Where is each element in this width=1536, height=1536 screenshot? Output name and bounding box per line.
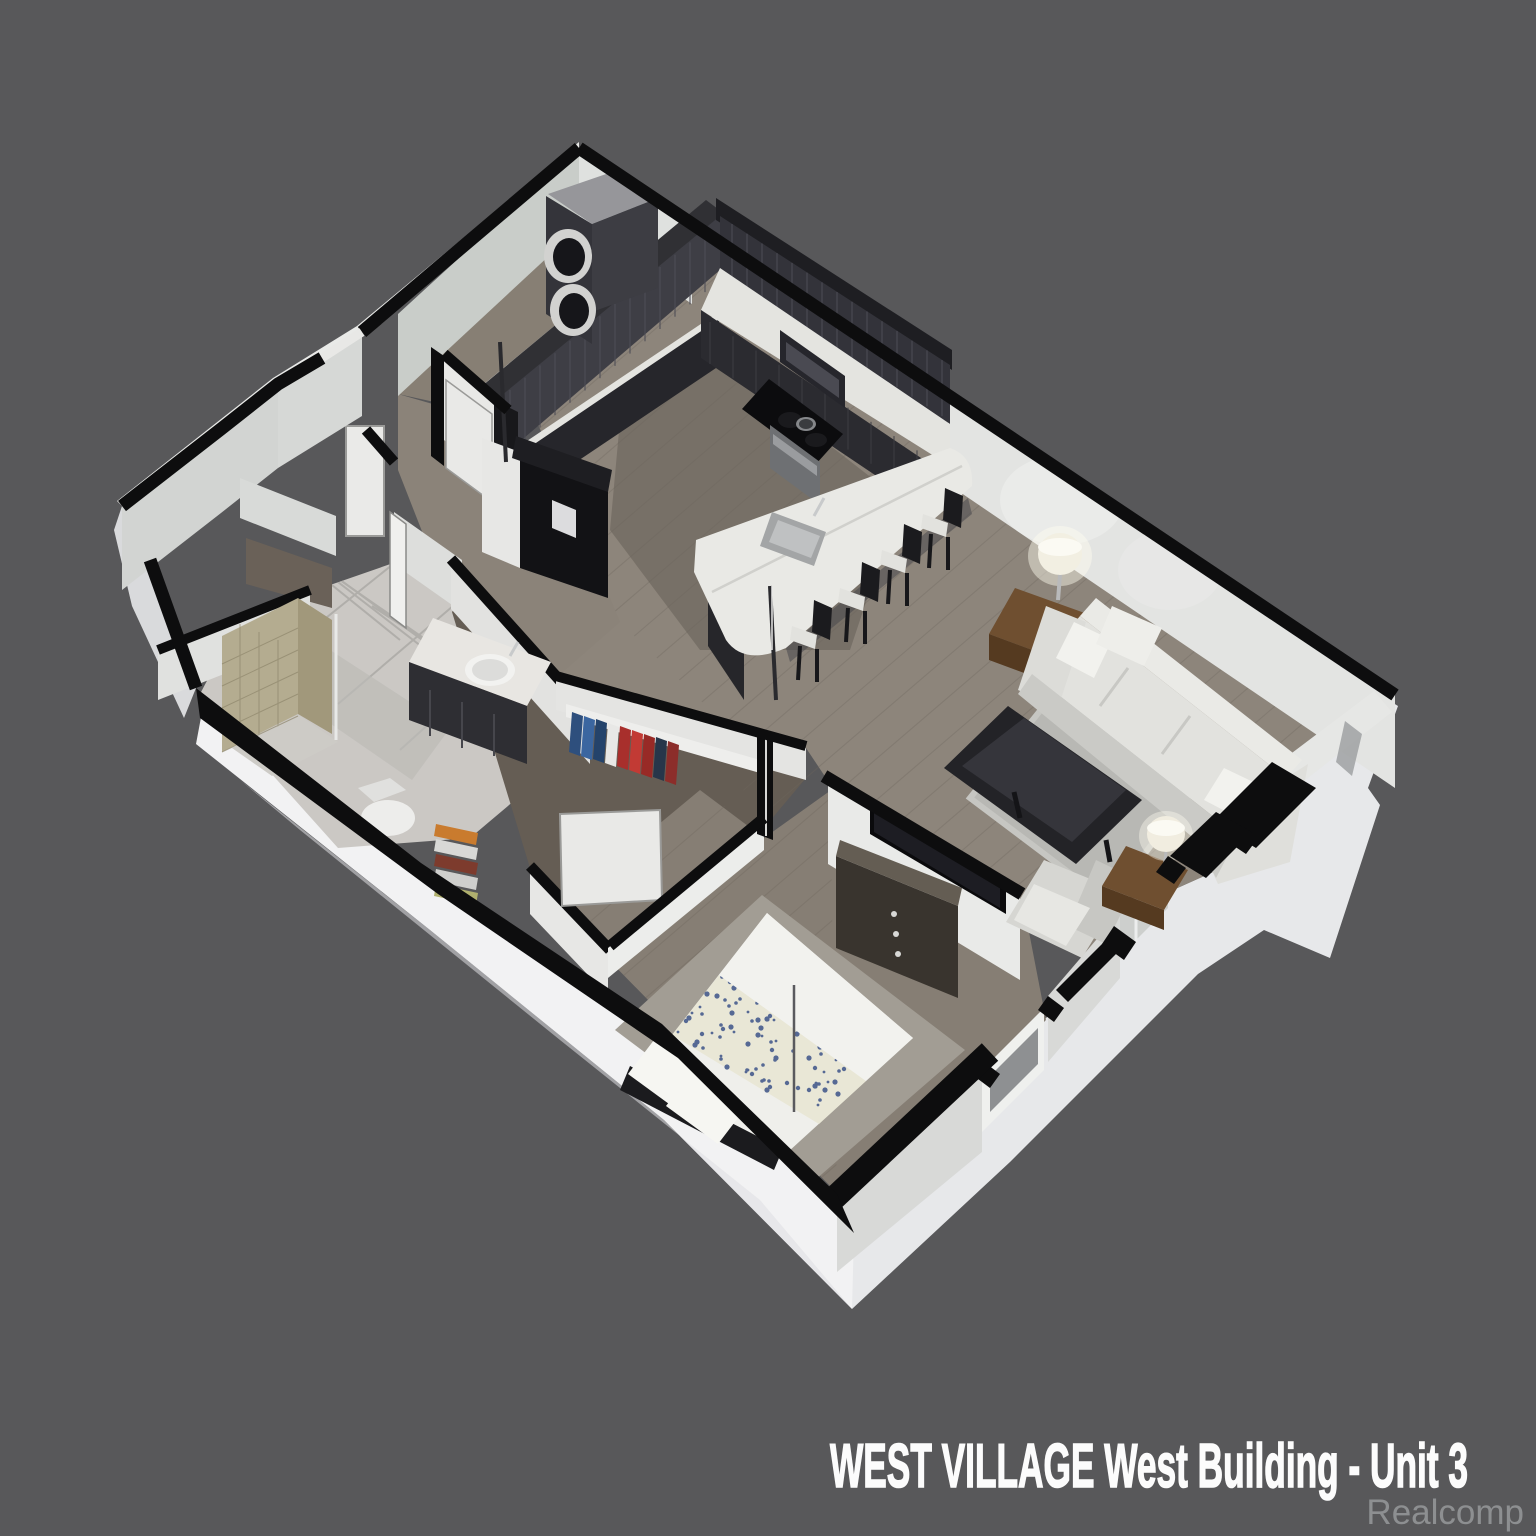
svg-text:WEST VILLAGE West Building - U: WEST VILLAGE West Building - Unit 3 xyxy=(830,1432,1468,1501)
svg-text:Realcomp: Realcomp xyxy=(1366,1493,1524,1532)
